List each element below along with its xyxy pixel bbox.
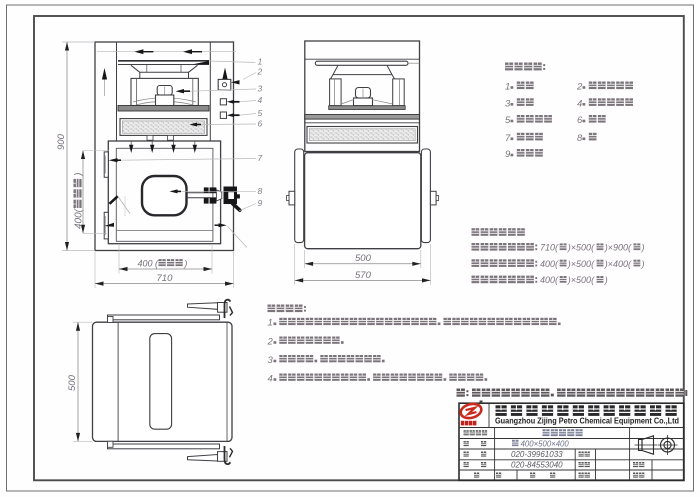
svg-text:9: 9: [505, 149, 511, 160]
svg-text:8: 8: [577, 133, 583, 144]
svg-text:1: 1: [505, 82, 510, 93]
svg-text:): ): [641, 243, 645, 253]
svg-text:3: 3: [505, 99, 511, 110]
svg-text:500: 500: [67, 374, 78, 391]
svg-text:): ): [641, 259, 645, 269]
svg-text:020-84553040: 020-84553040: [511, 461, 563, 470]
svg-text:7: 7: [505, 133, 511, 144]
svg-text:4: 4: [577, 99, 582, 110]
svg-text:400(: 400(: [540, 259, 559, 269]
svg-text:)×900(: )×900(: [604, 243, 632, 253]
svg-text:5: 5: [505, 115, 511, 126]
svg-text:2: 2: [576, 82, 583, 93]
svg-text:9: 9: [258, 198, 263, 208]
svg-text:400 (: 400 (: [138, 259, 160, 269]
svg-text:): ): [74, 172, 85, 176]
svg-text:500: 500: [355, 253, 372, 264]
svg-text:Guangzhou Zijing Petro Chemica: Guangzhou Zijing Petro Chemical Equipmen…: [495, 417, 679, 426]
svg-text:1: 1: [258, 57, 263, 67]
svg-text:710: 710: [157, 273, 174, 284]
svg-text:400(: 400(: [540, 275, 559, 285]
svg-text:6: 6: [577, 115, 583, 126]
svg-text:3: 3: [258, 84, 263, 94]
svg-text:020-39961033: 020-39961033: [511, 450, 563, 459]
svg-text:1: 1: [268, 318, 273, 329]
svg-text:2: 2: [267, 336, 274, 347]
svg-text:)×500(: )×500(: [567, 275, 595, 285]
svg-text:7: 7: [258, 153, 263, 163]
svg-text:400(: 400(: [74, 207, 85, 229]
svg-text:): ): [604, 275, 608, 285]
svg-text:4: 4: [268, 373, 273, 384]
svg-text:)×500(: )×500(: [567, 259, 595, 269]
svg-text:): ): [183, 259, 187, 269]
svg-text:710(: 710(: [540, 243, 559, 253]
svg-text:4: 4: [258, 95, 263, 105]
svg-text:400×500×400: 400×500×400: [521, 439, 570, 448]
svg-text:3: 3: [268, 355, 274, 366]
svg-text:570: 570: [355, 270, 372, 281]
svg-text:)×500(: )×500(: [567, 243, 595, 253]
svg-text:6: 6: [258, 119, 263, 129]
svg-text:5: 5: [258, 108, 263, 118]
svg-text:)×400(: )×400(: [604, 259, 632, 269]
svg-text:900: 900: [56, 133, 67, 150]
svg-text:8: 8: [258, 186, 263, 196]
svg-text:2: 2: [257, 67, 263, 77]
